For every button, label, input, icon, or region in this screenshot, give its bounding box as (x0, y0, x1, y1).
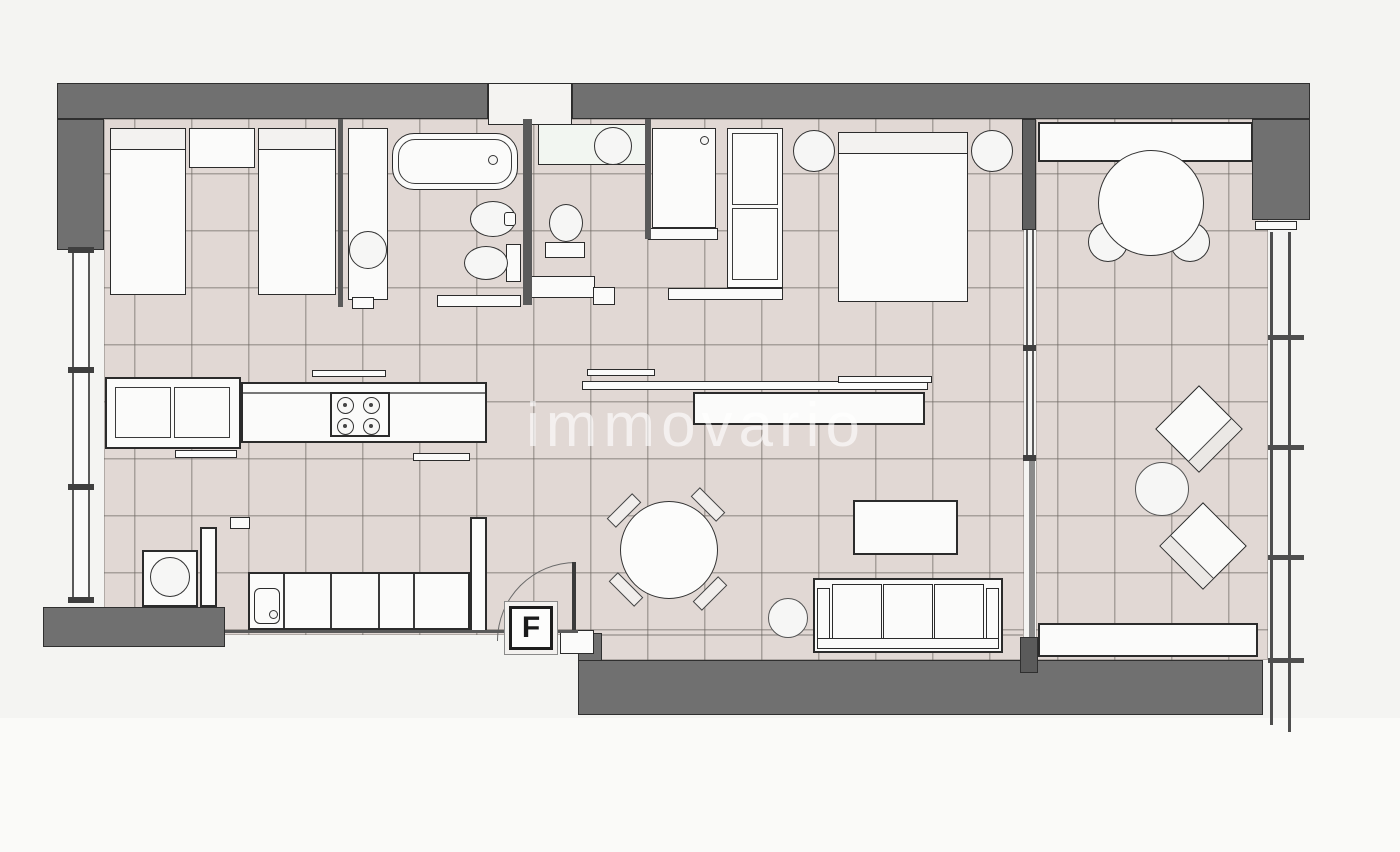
west-window-sill-3 (68, 484, 94, 490)
top-wall-right (572, 83, 1310, 119)
dining-table (620, 501, 718, 599)
top-wall-left (57, 83, 488, 119)
floor-marker-box: F (509, 606, 553, 650)
bed-single-1 (110, 128, 186, 295)
bed-1-headboard (111, 129, 185, 150)
island-panel-right (174, 387, 230, 438)
cabinet-divider-4 (413, 574, 415, 628)
toilet-bath2 (549, 204, 583, 242)
bed-single-2 (258, 128, 336, 295)
coffee-table (853, 500, 958, 555)
burner-3 (337, 418, 354, 435)
west-window-sill-4 (68, 597, 94, 603)
railing-post-2 (1268, 445, 1304, 450)
vanity-counter-bath1 (348, 128, 388, 300)
glass-partition-junction-2 (1023, 455, 1036, 461)
sideboard (693, 392, 925, 425)
railing-post-1 (1268, 335, 1304, 340)
sofa-cushion-3 (934, 584, 984, 639)
terrace-side-table (1135, 462, 1189, 516)
side-pouf (768, 598, 808, 638)
terrace-planter (1038, 623, 1258, 657)
shower-drain (700, 136, 709, 145)
bedroom1-bathroom-wall (338, 119, 343, 307)
entry-threshold (560, 630, 594, 654)
kitchen-faucet (269, 610, 278, 619)
kitchen-sink (254, 588, 280, 624)
kitchen-wall-rail (312, 370, 386, 377)
laundry-step (230, 517, 250, 529)
kitchen-cabinets-bottom (248, 572, 470, 630)
counter-end-ledge (413, 453, 470, 461)
glass-partition-footing (1020, 637, 1038, 673)
terrace-railing-outer (1288, 232, 1291, 732)
bottom-left-wall (43, 607, 225, 647)
railing-post-4 (1268, 658, 1304, 663)
laundry-partition (200, 527, 217, 607)
bathtub-drain (488, 155, 498, 165)
living-rail-right (838, 376, 932, 383)
burner-2 (363, 397, 380, 414)
cabinet-divider-3 (378, 574, 380, 628)
toilet-bath1 (464, 246, 508, 280)
outside-area (0, 718, 1400, 852)
railing-post-3 (1268, 555, 1304, 560)
terrace-round-table (1098, 150, 1204, 256)
shower-step (648, 228, 718, 240)
floor-plan-page: { "plan": { "watermark": "immovario", "e… (0, 0, 1400, 852)
cabinet-divider-2 (330, 574, 332, 628)
vanity-end-foot (352, 297, 374, 309)
west-window (72, 250, 90, 600)
cabinet-divider-1 (283, 574, 285, 628)
sofa-cushion-2 (883, 584, 933, 639)
kitchen-island-table (105, 377, 241, 449)
living-rail-left (587, 369, 655, 376)
wardrobe-master (727, 128, 783, 288)
bed-2-headboard (259, 129, 335, 150)
bottom-wall (578, 660, 1263, 715)
toilet-bath2-cistern (545, 242, 585, 258)
glass-partition-slider (1029, 460, 1035, 637)
floor-marker-label: F (522, 611, 540, 645)
sofa-backrest (817, 638, 999, 649)
left-wall-upper (57, 119, 104, 250)
bath1-door-threshold (437, 295, 521, 307)
bathroom2-right-wall (645, 119, 651, 239)
nightstand-master-left (793, 130, 835, 172)
sofa (813, 578, 1003, 653)
wardrobe-cell-bottom (732, 208, 778, 280)
bathrooms-separating-wall (523, 119, 532, 305)
nightstand-bedroom1 (189, 128, 255, 168)
island-side-ledge (175, 450, 237, 458)
wardrobe-base-ledge (668, 288, 783, 300)
west-window-sill-2 (68, 367, 94, 373)
bed-double-master (838, 132, 968, 302)
glass-partition-top-pillar (1022, 119, 1036, 230)
wardrobe-cell-top (732, 133, 778, 205)
top-right-corner-block (1252, 119, 1310, 220)
west-window-sill-1 (68, 247, 94, 253)
toilet-bath1-cistern (506, 244, 521, 282)
washbasin-bath2 (594, 127, 632, 165)
bath2-bench (531, 276, 595, 298)
master-headboard (839, 133, 967, 154)
island-panel-left (115, 387, 171, 438)
washbasin-bath1 (349, 231, 387, 269)
glass-partition-junction-1 (1023, 345, 1036, 351)
kitchen-right-partition (470, 517, 487, 632)
bidet-faucet (504, 212, 516, 226)
bath2-door-threshold (593, 287, 615, 305)
sofa-cushion-1 (832, 584, 882, 639)
corner-window-connector (1255, 221, 1297, 230)
burner-4 (363, 418, 380, 435)
nightstand-master-right (971, 130, 1013, 172)
terrace-railing-inner (1270, 232, 1273, 725)
washing-machine-drum (150, 557, 190, 597)
burner-1 (337, 397, 354, 414)
